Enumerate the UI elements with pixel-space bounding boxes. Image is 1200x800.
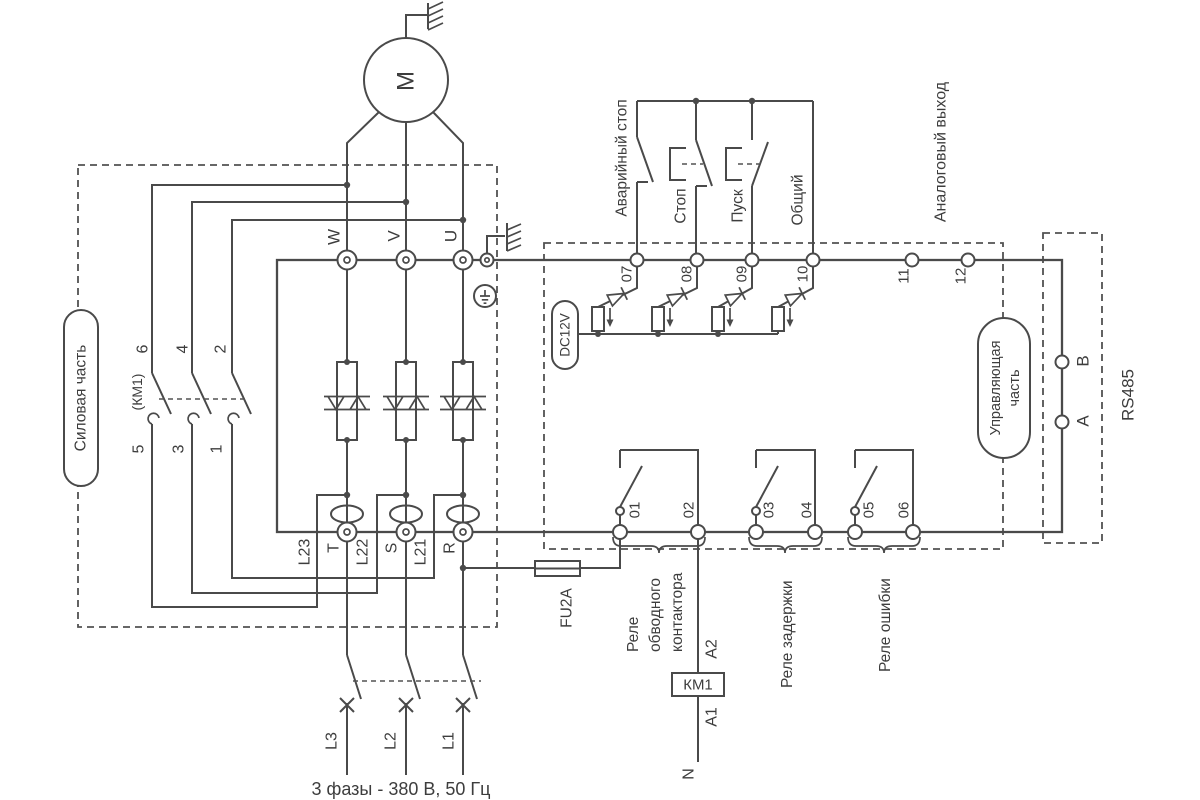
terminal-w-label: W bbox=[325, 229, 344, 245]
km1-coil-label: КМ1 bbox=[683, 677, 713, 694]
km1-pin-6-label: 6 bbox=[135, 344, 152, 353]
terminal-r-label: R bbox=[442, 542, 459, 554]
km1-designation-label: (КМ1) bbox=[129, 374, 145, 411]
bypass-relay-label-2: обводного bbox=[647, 578, 664, 652]
supply-note: 3 фазы - 380 В, 50 Гц bbox=[312, 779, 491, 799]
phase-l3-label: L3 bbox=[324, 732, 341, 750]
resistor bbox=[652, 307, 664, 331]
rs485-label: RS485 bbox=[1119, 369, 1138, 421]
schematic-page: М Силовая часть W V U 6 4 2 (КМ1) 5 3 1 … bbox=[0, 0, 1200, 800]
phase-l1-label: L1 bbox=[441, 732, 458, 750]
rs485-box bbox=[1043, 233, 1102, 543]
wires bbox=[148, 15, 913, 775]
resistor bbox=[592, 307, 604, 331]
terminal-07-label: 07 bbox=[619, 266, 636, 283]
bypass-relay-label-1: Реле bbox=[625, 617, 642, 652]
control-section-label-2: часть bbox=[1007, 369, 1023, 406]
error-relay-label: Реле ошибки bbox=[877, 578, 894, 672]
brace bbox=[613, 537, 705, 553]
delay-relay-label: Реле задержки bbox=[779, 580, 796, 688]
terminal-02-label: 02 bbox=[681, 502, 698, 519]
dc12v-label: DC12V bbox=[558, 313, 573, 357]
km1-pin-3-label: 3 bbox=[171, 444, 188, 453]
terminal-l21-label: L21 bbox=[413, 539, 430, 566]
km1-pin-4-label: 4 bbox=[175, 344, 192, 353]
relay-braces bbox=[613, 537, 920, 553]
terminal-v-label: V bbox=[385, 230, 404, 242]
terminal-09-label: 09 bbox=[734, 266, 751, 283]
emergency-stop-label: Аварийный стоп bbox=[614, 99, 631, 216]
terminal-04-label: 04 bbox=[799, 502, 816, 519]
terminal-l23-label: L23 bbox=[297, 539, 314, 566]
terminal-05-label: 05 bbox=[861, 502, 878, 519]
thyristor-modules bbox=[324, 362, 486, 440]
brace bbox=[749, 537, 822, 553]
a1-label: A1 bbox=[704, 707, 721, 727]
control-section-label-1: Управляющая bbox=[988, 341, 1004, 436]
brace bbox=[848, 537, 920, 553]
start-label: Пуск bbox=[730, 189, 747, 222]
resistor bbox=[712, 307, 724, 331]
rs485-b-label: B bbox=[1074, 355, 1093, 366]
terminal-03-label: 03 bbox=[761, 502, 778, 519]
terminal-06-label: 06 bbox=[896, 502, 913, 519]
rs485-a-label: A bbox=[1074, 415, 1093, 427]
thyristor-module bbox=[396, 362, 416, 440]
fuse-label: FU2A bbox=[559, 588, 576, 628]
terminal-10-label: 10 bbox=[795, 266, 812, 283]
motor-label: М bbox=[393, 71, 420, 91]
ground-icons bbox=[428, 2, 521, 307]
a2-label: A2 bbox=[704, 639, 721, 659]
common-label: Общий bbox=[790, 174, 807, 225]
terminal-12-label: 12 bbox=[953, 268, 970, 285]
km1-pin-1-label: 1 bbox=[209, 444, 226, 453]
thyristor-module bbox=[453, 362, 473, 440]
terminal-t-label: T bbox=[326, 543, 343, 553]
thyristor-module bbox=[337, 362, 357, 440]
resistor bbox=[772, 307, 784, 331]
terminal-u-label: U bbox=[442, 230, 461, 242]
stop-label: Стоп bbox=[673, 188, 690, 223]
power-section-label: Силовая часть bbox=[73, 345, 90, 452]
opto-input-icons bbox=[592, 287, 805, 331]
bypass-relay-label-3: контактора bbox=[669, 572, 686, 652]
km1-pin-5-label: 5 bbox=[131, 444, 148, 453]
terminal-11-label: 11 bbox=[896, 268, 913, 284]
phase-l2-label: L2 bbox=[383, 732, 400, 750]
contact-pivots bbox=[616, 507, 859, 515]
terminal-08-label: 08 bbox=[679, 266, 696, 283]
terminal-01-label: 01 bbox=[627, 502, 644, 519]
pushbutton-actuator-icons bbox=[670, 148, 742, 180]
terminal-l22-label: L22 bbox=[355, 539, 372, 566]
wiring-diagram-canvas: М Силовая часть W V U 6 4 2 (КМ1) 5 3 1 … bbox=[0, 0, 1200, 800]
terminal-s-label: S bbox=[384, 543, 401, 554]
km1-pin-2-label: 2 bbox=[213, 344, 230, 353]
n-label: N bbox=[681, 768, 698, 780]
analog-output-label: Аналоговый выход bbox=[933, 81, 950, 222]
